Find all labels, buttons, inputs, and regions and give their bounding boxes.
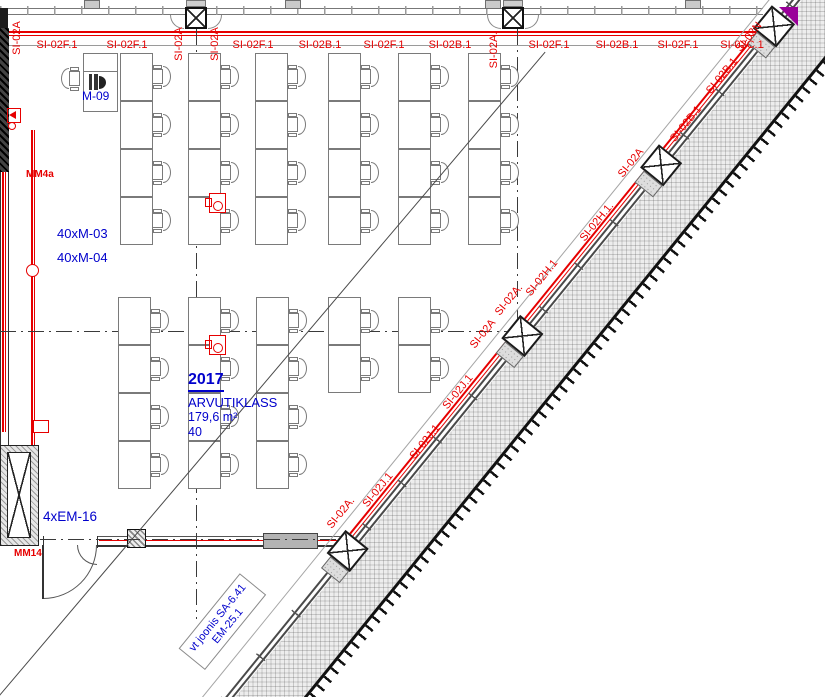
desk: [328, 53, 361, 101]
cable-route-label: SI-02F.1: [37, 39, 78, 51]
desk: [468, 197, 501, 245]
chair: [360, 65, 381, 89]
structural-column: [502, 7, 524, 29]
wall-pier: [285, 0, 301, 9]
desk: [328, 149, 361, 197]
desk: [256, 441, 289, 489]
column-cap: [186, 0, 206, 7]
connection-arc: [525, 15, 539, 29]
chair: [150, 309, 171, 333]
desk: [328, 297, 361, 345]
sockets-code-label: 4xEM-16: [43, 509, 97, 524]
floor-socket-box-lower: [209, 335, 226, 355]
desk: [118, 345, 151, 393]
desk: [328, 345, 361, 393]
chair: [430, 357, 451, 381]
cable-route-label-vertical: SI-02A: [11, 21, 23, 55]
cable-tray-top-2: [0, 35, 762, 36]
chair: [220, 453, 241, 477]
speaker-symbol: [7, 108, 21, 123]
wall-pier: [84, 0, 100, 9]
chair: [360, 357, 381, 381]
corner-accent-triangle: [779, 7, 798, 26]
desk: [398, 297, 431, 345]
desk: [255, 53, 288, 101]
floor-box-left: [33, 420, 49, 433]
chair: [430, 309, 451, 333]
desk: [255, 149, 288, 197]
desk: [398, 345, 431, 393]
chair: [150, 357, 171, 381]
left-riser-line-1: [2, 172, 4, 432]
chair: [150, 453, 171, 477]
desk: [188, 101, 221, 149]
riser-label-mm14: MM14: [14, 548, 42, 559]
desk: [468, 149, 501, 197]
desk: [328, 101, 361, 149]
chair: [430, 65, 451, 89]
room-name: ARVUTIKLASS: [188, 395, 277, 410]
grid-axis-horizontal-2: [40, 539, 346, 540]
desk: [256, 297, 289, 345]
cable-route-label: SI-02F.1: [529, 39, 570, 51]
left-riser-line-2: [5, 172, 6, 432]
chair: [288, 357, 309, 381]
chair: [150, 405, 171, 429]
chair: [220, 65, 241, 89]
structural-column: [185, 7, 207, 29]
desk: [120, 53, 153, 101]
teacher-chair: [59, 67, 80, 91]
cable-route-label-vertical: SI-02A: [173, 27, 185, 61]
floor-socket-box-upper: [209, 193, 226, 213]
desks-code-label: 40xM-03: [57, 226, 108, 241]
bottom-wall-pier: [263, 533, 318, 549]
chair: [360, 161, 381, 185]
wall-pier: [485, 0, 501, 9]
connection-arc: [487, 15, 501, 29]
chair: [288, 453, 309, 477]
cable-tray-top-1: [0, 31, 762, 33]
desk: [120, 197, 153, 245]
cable-route-label-diagonal: SI-02A.: [493, 282, 525, 318]
chair: [287, 161, 308, 185]
chair: [288, 309, 309, 333]
shaft: [0, 445, 39, 546]
chair: [287, 113, 308, 137]
teacher-unit-label: M-09: [82, 89, 109, 103]
chair: [287, 65, 308, 89]
chair: [430, 209, 451, 233]
chair: [152, 113, 173, 137]
cable-route-label: SI-02F.1: [658, 39, 699, 51]
desk: [398, 101, 431, 149]
door-jamb-right: [97, 536, 98, 548]
chair: [500, 65, 521, 89]
chair: [220, 113, 241, 137]
cable-route-label-diagonal: SI-02A: [468, 317, 499, 351]
cable-route-label-vertical: SI-02A.: [488, 32, 500, 69]
chair: [360, 113, 381, 137]
chair: [287, 209, 308, 233]
chair: [500, 113, 521, 137]
chair: [288, 405, 309, 429]
cable-route-label: SI-02F.1: [107, 39, 148, 51]
desk: [118, 297, 151, 345]
junction-circle: [26, 264, 39, 277]
chair: [430, 113, 451, 137]
cable-route-label: SI-02B.1: [299, 39, 342, 51]
cable-route-label-vertical: SI-02A: [209, 27, 221, 61]
chair: [220, 161, 241, 185]
desk: [188, 149, 221, 197]
cable-route-label: SI-02B.1: [596, 39, 639, 51]
chair: [152, 209, 173, 233]
desk: [120, 101, 153, 149]
chair: [152, 65, 173, 89]
teacher-desk: [83, 53, 118, 112]
chair: [500, 161, 521, 185]
wall-pier: [685, 0, 701, 9]
room-area: 179,6 m²: [188, 410, 237, 424]
desk: [118, 393, 151, 441]
desk: [255, 197, 288, 245]
desk: [398, 53, 431, 101]
chair: [220, 309, 241, 333]
junction-circle-small: [8, 122, 16, 130]
chairs-code-label: 40xM-04: [57, 250, 108, 265]
room-occupancy: 40: [188, 425, 202, 439]
room-number: 2017: [188, 371, 224, 392]
cable-route-label: SI-02F.1: [233, 39, 274, 51]
reference-callout: vt joonis SA-6.41 EM-25.1: [179, 573, 267, 670]
chair: [152, 161, 173, 185]
av-device-icon: [89, 74, 92, 90]
cable-route-label: SI-02F.1: [364, 39, 405, 51]
projector-lens-icon: [99, 76, 106, 89]
desk: [118, 441, 151, 489]
chair: [500, 209, 521, 233]
riser-label-mm4a: MM4a: [26, 169, 54, 180]
column-cap: [503, 0, 523, 7]
door-leaf: [42, 545, 44, 599]
desk: [120, 149, 153, 197]
chair: [360, 209, 381, 233]
left-wall-solid: [0, 28, 9, 172]
floor-plan-canvas: vt joonis SA-6.41 EM-25.1 M-09 40xM-03 4…: [0, 0, 825, 697]
chair: [360, 309, 381, 333]
desk: [255, 101, 288, 149]
av-device-icon: [94, 74, 98, 90]
desk: [328, 197, 361, 245]
cable-route-label: SI-02B.1: [429, 39, 472, 51]
top-wall-mullions: [0, 6, 762, 15]
